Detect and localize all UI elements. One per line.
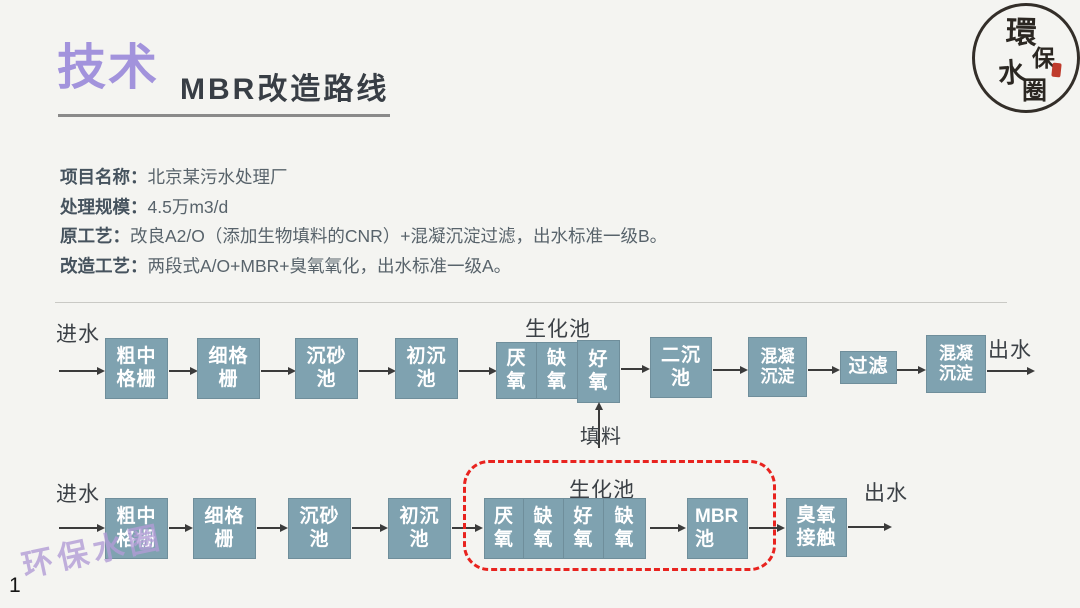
box-line: 好 [588,349,608,372]
flow-arrow [359,370,394,372]
new-box-primary-tank: 初沉池 [388,498,451,559]
flow-arrow [897,369,924,371]
filler-label: 填料 [580,420,622,449]
box-line: 氧 [547,371,567,394]
box-line: 池 [671,368,691,391]
old-box-anaerobic: 厌氧 [496,342,537,399]
box-line: 氧 [614,529,634,552]
old-box-secondary-tank: 二沉池 [650,337,712,398]
old-bio-group-label: 生化池 [525,313,591,343]
flow-arrow [808,369,838,371]
box-line: 池 [409,529,429,552]
title-underline [58,114,390,117]
box-line: 沉砂 [299,506,339,529]
title-accent: 技术 [57,42,159,96]
flow-arrow [59,370,103,372]
box-line: 池 [695,529,714,552]
info-value: 两段式A/O+MBR+臭氧氧化，出水标准一级A。 [148,256,512,276]
new-flow-outlet-label: 出水 [864,477,908,507]
box-line: 初沉 [399,506,439,529]
box-line: 池 [416,369,436,392]
box-line: 二沉 [661,345,701,368]
new-box-ozone-contact: 臭氧接触 [786,498,847,557]
flow-arrow [459,370,495,372]
old-box-coagulation-2: 混凝沉淀 [926,335,986,393]
flow-arrow [621,368,648,370]
watermark: 环保水圈 [17,512,167,586]
info-label: 原工艺： [60,226,130,246]
flow-arrow [257,527,286,529]
box-line: 池 [309,529,329,552]
new-box-fine-screen: 细格栅 [193,498,256,559]
box-line: 混凝 [761,347,795,367]
old-box-filtration: 过滤 [840,351,897,384]
info-line-capacity: 处理规模：4.5万m3/d [60,193,1020,223]
new-box-anoxic-1: 缺氧 [523,498,564,559]
logo-red-seal-icon [1051,63,1061,78]
old-box-coarse-screen: 粗中格栅 [105,338,168,399]
slide: 技术 MBR改造路线 環 保 水 圈 项目名称：北京某污水处理厂 处理规模：4.… [0,0,1080,608]
flow-arrow [650,527,684,529]
box-line: 厌 [506,348,526,371]
logo-char-4: 圈 [1022,71,1047,107]
page-number: 1 [9,574,21,598]
box-line: 氧 [494,529,514,552]
box-line: 格栅 [116,369,156,392]
page-title: MBR改造路线 [180,64,389,108]
box-line: 细格 [204,506,244,529]
old-box-aerobic: 好氧 [577,340,620,403]
box-line: 臭氧 [796,505,836,528]
box-line: 缺 [533,506,553,529]
info-label: 项目名称： [60,167,148,187]
new-box-anaerobic: 厌氧 [484,498,524,559]
box-line: 初沉 [406,346,446,369]
flow-arrow [169,527,191,529]
box-line: 缺 [547,348,567,371]
old-flow-outlet-label: 出水 [988,334,1032,364]
new-flow-inlet-label: 进水 [56,478,100,508]
project-info: 项目名称：北京某污水处理厂 处理规模：4.5万m3/d 原工艺：改良A2/O（添… [60,163,1020,281]
box-line: 氧 [533,529,553,552]
box-line: 池 [316,369,336,392]
box-line: 过滤 [848,356,888,379]
old-box-grit-chamber: 沉砂池 [295,338,358,399]
brand-logo: 環 保 水 圈 [966,1,1078,113]
box-line: 好 [573,506,593,529]
box-line: 沉淀 [761,367,795,387]
info-value: 4.5万m3/d [148,197,229,217]
box-line: 沉淀 [939,364,973,384]
box-line: 厌 [494,506,514,529]
box-line: 栅 [214,529,234,552]
box-line: 沉砂 [306,346,346,369]
box-line: MBR [695,506,738,529]
flow-arrow [987,370,1033,372]
info-label: 改造工艺： [60,256,148,276]
flow-arrow [713,369,746,371]
old-box-anoxic: 缺氧 [536,342,578,399]
info-value: 北京某污水处理厂 [148,167,288,187]
info-line-project-name: 项目名称：北京某污水处理厂 [60,163,1020,193]
old-box-coagulation-1: 混凝沉淀 [748,337,807,397]
box-line: 接触 [796,528,836,551]
new-box-aerobic: 好氧 [563,498,604,559]
flow-arrow [352,527,386,529]
flow-arrow [749,527,783,529]
box-line: 氧 [573,529,593,552]
new-box-anoxic-2: 缺氧 [603,498,646,559]
old-box-fine-screen: 细格栅 [197,338,260,399]
box-line: 氧 [506,371,526,394]
flow-arrow [169,370,196,372]
section-divider [55,302,1007,303]
box-line: 缺 [614,506,634,529]
box-line: 混凝 [939,344,973,364]
box-line: 细格 [208,346,248,369]
info-label: 处理规模： [60,197,148,217]
box-line: 栅 [218,369,238,392]
box-line: 粗中 [116,346,156,369]
flow-arrow [848,526,890,528]
new-box-mbr: MBR池 [687,498,748,559]
new-box-grit-chamber: 沉砂池 [288,498,351,559]
box-line: 氧 [588,372,608,395]
old-box-primary-tank: 初沉池 [395,338,458,399]
info-value: 改良A2/O（添加生物填料的CNR）+混凝沉淀过滤，出水标准一级B。 [130,226,667,246]
info-line-old-process: 原工艺：改良A2/O（添加生物填料的CNR）+混凝沉淀过滤，出水标准一级B。 [60,222,1020,252]
info-line-new-process: 改造工艺：两段式A/O+MBR+臭氧氧化，出水标准一级A。 [60,252,1020,282]
old-flow-inlet-label: 进水 [56,318,100,348]
flow-arrow [261,370,294,372]
